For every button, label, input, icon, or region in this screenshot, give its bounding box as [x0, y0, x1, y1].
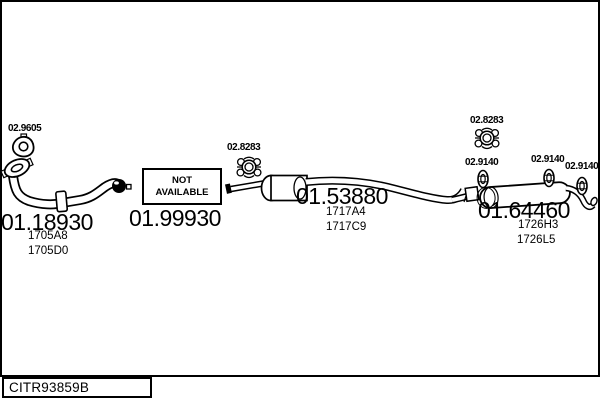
part-ref: 1717C9 [326, 222, 366, 234]
gasket-icon [13, 134, 34, 157]
not-available-line2: AVAILABLE [156, 187, 209, 199]
part-ref: 1726L5 [517, 235, 555, 247]
part-ref: 1705A8 [28, 231, 68, 243]
not-available-box: NOT AVAILABLE [142, 168, 222, 205]
drawing-code-box: CITR93859B [2, 377, 152, 398]
fitting-label-center-clamp: 02.8283 [227, 143, 260, 153]
not-available-line1: NOT [172, 175, 192, 187]
drawing-code: CITR93859B [9, 380, 89, 395]
exhaust-parts-diagram: 02.9605 01.18930 1705A8 1705D0 NOT AVAIL… [0, 0, 600, 400]
hanger-icon [478, 171, 488, 188]
hanger-icon [544, 170, 554, 187]
clamp-icon [475, 128, 499, 148]
part-number-middle-pipe[interactable]: 01.99930 [129, 207, 221, 230]
fitting-label-hanger-3: 02.9140 [565, 162, 598, 172]
front-pipe-drawing [0, 134, 131, 212]
fitting-label-rear-clamp: 02.8283 [470, 116, 503, 126]
part-number-center-pipe[interactable]: 01.53880 [296, 185, 388, 208]
clamp-icon [237, 157, 261, 177]
part-ref: 1726H3 [518, 220, 558, 232]
part-ref: 1717A4 [326, 207, 366, 219]
fitting-label-front-gasket: 02.9605 [8, 124, 41, 134]
hanger-icon [577, 178, 587, 195]
fitting-label-hanger-2: 02.9140 [531, 155, 564, 165]
part-ref: 1705D0 [28, 246, 68, 258]
fitting-label-hanger-1: 02.9140 [465, 158, 498, 168]
